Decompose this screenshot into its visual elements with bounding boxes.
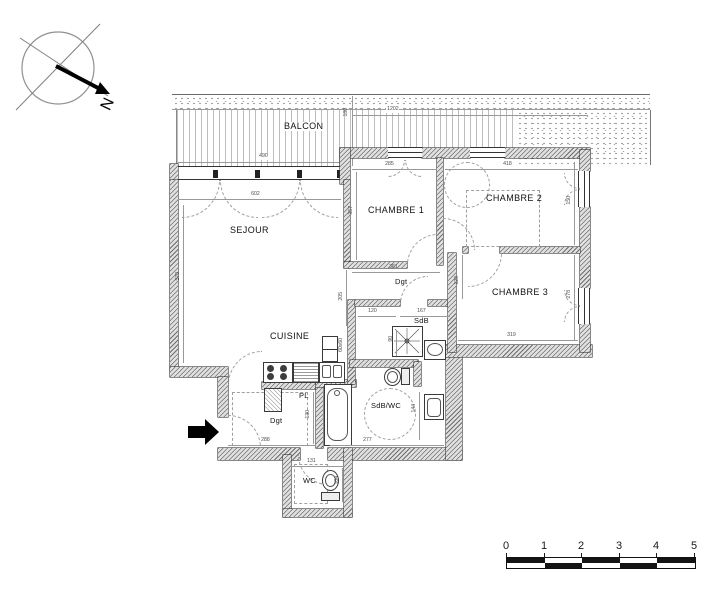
chambre3-door-arc <box>468 253 502 287</box>
stove-burner <box>280 373 287 380</box>
dim-line <box>228 445 316 446</box>
wall-top-mid <box>422 148 470 158</box>
washbasin-sdbwc <box>424 394 444 420</box>
sdb-sink <box>424 340 446 360</box>
dim-wc-depth: 104 <box>335 476 341 485</box>
wall-right-b <box>580 207 590 288</box>
scale-bar: 0 1 2 3 4 5 <box>504 540 699 576</box>
scale-tick-label: 4 <box>651 540 661 552</box>
wall-wc-right <box>344 448 352 517</box>
stove <box>263 362 293 383</box>
wall-sejour-bottom-left <box>170 367 228 377</box>
dim-sejour-bay: 490 <box>258 154 269 160</box>
wall-sdb-sdbwc <box>350 360 418 367</box>
wall-entry-post <box>218 377 228 417</box>
dim-line <box>352 169 437 170</box>
sink-basin <box>333 365 342 378</box>
toilet-bowl-inner <box>387 371 398 383</box>
washbasin-inner <box>427 398 441 417</box>
dim-chambre1-depth: 357 <box>349 206 355 215</box>
window-mullion <box>213 170 218 178</box>
scale-bar-row <box>507 563 695 568</box>
wall-facade-step <box>340 148 350 184</box>
room-label-dgt-lower: Dgt <box>270 417 282 425</box>
entrance-arrow <box>188 426 205 438</box>
room-label-cuisine: CUISINE <box>270 332 309 341</box>
dim-sdbwc-width: 277 <box>363 438 372 444</box>
kitchen-counter <box>293 362 319 383</box>
window-swing-arc <box>564 306 580 322</box>
wall-sdb-left <box>348 300 355 384</box>
north-label: N <box>96 95 116 113</box>
wall-bath-divider <box>414 362 421 386</box>
dim-chambre2-depth: 150 <box>567 196 573 205</box>
window-mullion <box>255 170 260 178</box>
scale-segment <box>507 563 545 568</box>
dim-line <box>183 205 184 363</box>
bathtub <box>324 384 352 446</box>
wall-right-a <box>580 150 590 171</box>
chambre1-door-arc <box>407 234 438 265</box>
dim-balcony-depth: 180 <box>344 108 350 117</box>
dim-line <box>458 340 578 341</box>
wall-ch2-ch3 <box>500 247 580 253</box>
shower-star <box>393 327 422 356</box>
dim-line <box>445 169 578 170</box>
dim-sdb-width: 167 <box>417 309 426 315</box>
entrance-arrow-head <box>205 419 219 445</box>
dim-line <box>178 199 341 200</box>
scale-segment <box>545 563 583 568</box>
dim-line <box>574 255 575 341</box>
dim-line <box>400 316 450 317</box>
dim-chambre1-width: 285 <box>385 162 394 168</box>
dim-line <box>352 115 588 116</box>
window-chambre1 <box>388 147 422 158</box>
dim-line <box>574 162 575 245</box>
toilet-wc-tank <box>321 492 340 501</box>
dim-line <box>358 316 396 317</box>
scale-tick-label: 5 <box>689 540 699 552</box>
dim-sdbwc-depth: 144 <box>412 404 418 413</box>
dim-line <box>313 392 314 444</box>
scale-bar-strip <box>506 557 696 569</box>
dim-pl-depth: 130 <box>306 410 312 419</box>
dim-line <box>396 330 397 356</box>
room-label-sdb: SdB <box>414 317 429 325</box>
dim-chambre3-door: 120 <box>455 276 461 285</box>
dim-line <box>346 270 347 326</box>
wall-right-c <box>580 324 590 352</box>
dim-line <box>419 392 420 440</box>
window-swing-arc <box>564 173 580 189</box>
dim-line <box>462 255 463 299</box>
dim-shower-width: 90 <box>389 336 395 342</box>
window-mullion <box>297 170 302 178</box>
dim-line <box>352 272 440 273</box>
wall-wc-bottom <box>283 509 352 517</box>
floor-plan: N BALCON 1202 180 490 <box>0 0 701 600</box>
wall-right-lower <box>446 352 462 460</box>
room-label-dgt-upper: Dgt <box>395 278 407 286</box>
dim-line <box>356 172 357 260</box>
toilet-sdbwc-tank <box>401 368 410 385</box>
toilet-sdbwc-bowl <box>384 368 401 386</box>
dim-line <box>291 466 344 467</box>
dim-wc-width: 131 <box>307 459 316 465</box>
room-label-pl: PL <box>299 392 309 400</box>
room-label-sejour: SEJOUR <box>230 226 269 235</box>
balcony-top-band <box>172 94 650 110</box>
scale-tick-label: 0 <box>501 540 511 552</box>
dim-balcony-length: 1202 <box>386 107 399 113</box>
dim-sejour-depth: 570 <box>176 272 182 281</box>
stove-burner <box>267 365 274 372</box>
room-label-chambre1: CHAMBRE 1 <box>368 206 424 215</box>
scale-tick-label: 1 <box>539 540 549 552</box>
scale-segment <box>620 563 658 568</box>
wall-top-ch2-right <box>505 148 590 158</box>
wall-wc-left <box>283 455 291 517</box>
scale-tick-label: 3 <box>614 540 624 552</box>
wall-sdb-top-left <box>355 300 400 306</box>
dim-mid-depth: 205 <box>339 292 345 301</box>
stove-burner <box>280 365 287 372</box>
wall-pl-right <box>316 380 323 448</box>
kitchen-tall-unit <box>322 336 338 362</box>
dim-line <box>330 445 444 446</box>
dim-kitchen-unit: 60x60 <box>339 338 345 352</box>
room-label-chambre2: CHAMBRE 2 <box>486 194 542 203</box>
room-label-chambre3: CHAMBRE 3 <box>492 288 548 297</box>
dim-line <box>178 162 344 163</box>
dim-sdb-offset: 120 <box>368 309 377 315</box>
room-label-balcon: BALCON <box>282 122 325 131</box>
clearance-circle-sdbwc <box>364 388 416 440</box>
dim-chambre3-depth: 278 <box>567 290 573 299</box>
compass-rose: N <box>8 6 128 121</box>
dim-chambre3-width: 319 <box>507 333 516 339</box>
wall-ch3-left <box>448 253 456 352</box>
scale-segment <box>657 563 695 568</box>
sejour-window-band <box>172 166 344 180</box>
sink-basin <box>322 365 331 378</box>
room-label-sdbwc: SdB/WC <box>371 402 401 410</box>
wall-sejour-ch1 <box>344 180 350 268</box>
dim-hall-width: 361 <box>389 265 398 271</box>
bathtub-faucet <box>334 390 340 396</box>
dim-sejour-width: 602 <box>251 192 260 198</box>
pl-closet-shelf <box>264 388 282 412</box>
dim-entry-width: 288 <box>261 438 270 444</box>
dim-line <box>342 468 343 502</box>
wall-ch3-bottom <box>446 345 592 357</box>
scale-segment <box>582 563 620 568</box>
window-chambre2 <box>470 147 505 158</box>
room-label-wc: WC <box>303 477 316 485</box>
dim-chambre2-width: 418 <box>503 162 512 168</box>
wall-facade-left-post <box>170 164 178 180</box>
scale-tick-label: 2 <box>576 540 586 552</box>
stove-burner <box>267 373 274 380</box>
sdb-sink-bowl <box>427 343 443 356</box>
kitchen-sink <box>319 362 345 383</box>
sejour-door-arc <box>228 351 262 385</box>
